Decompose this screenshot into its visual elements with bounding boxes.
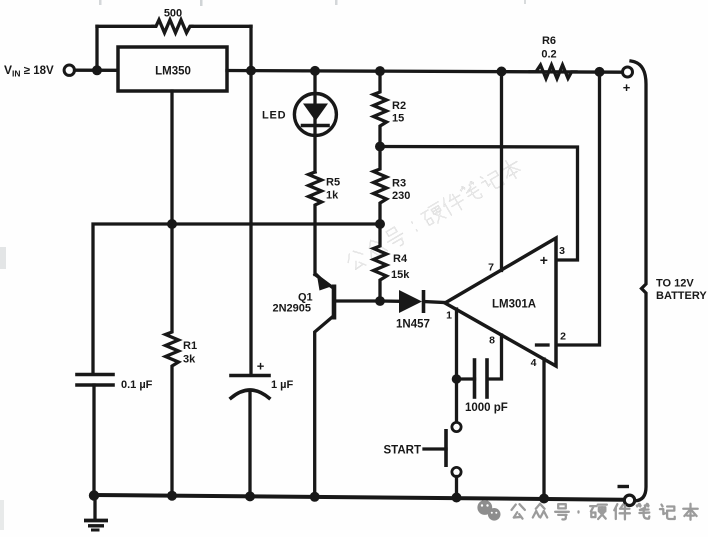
svg-text:VIN ≥ 18V: VIN ≥ 18V [4,63,54,79]
svg-text:+: + [257,359,265,374]
svg-text:R4: R4 [393,253,408,265]
svg-text:R5: R5 [326,177,340,189]
svg-text:BATTERY: BATTERY [656,290,707,302]
svg-text:230: 230 [392,190,410,202]
svg-text:LED: LED [262,110,286,122]
svg-text:2N2905: 2N2905 [273,303,312,315]
svg-text:1k: 1k [326,190,339,202]
svg-text:3k: 3k [183,354,196,366]
svg-text:R1: R1 [183,340,197,352]
svg-text:0.2: 0.2 [541,49,556,61]
svg-text:+: + [540,252,548,268]
svg-text:LM301A: LM301A [492,299,536,311]
svg-text:R3: R3 [392,178,406,190]
svg-text:8: 8 [489,335,495,347]
svg-text:R6: R6 [542,35,556,47]
svg-text:1000 pF: 1000 pF [465,402,508,414]
svg-text:500: 500 [164,8,182,20]
svg-text:4: 4 [531,357,537,369]
svg-text:2: 2 [560,331,566,343]
svg-text:1N457: 1N457 [396,319,430,331]
svg-text:R2: R2 [392,100,406,112]
svg-text:+: + [623,80,631,95]
svg-text:3: 3 [559,245,565,257]
svg-text:TO 12V: TO 12V [656,278,694,290]
svg-text:1: 1 [446,310,452,322]
svg-text:START: START [384,445,421,457]
svg-text:15: 15 [392,113,404,125]
svg-text:0.1 µF: 0.1 µF [121,379,153,391]
svg-text:7: 7 [488,262,494,274]
svg-text:LM350: LM350 [155,66,191,78]
svg-text:1 µF: 1 µF [271,379,294,391]
svg-text:15k: 15k [391,269,410,281]
